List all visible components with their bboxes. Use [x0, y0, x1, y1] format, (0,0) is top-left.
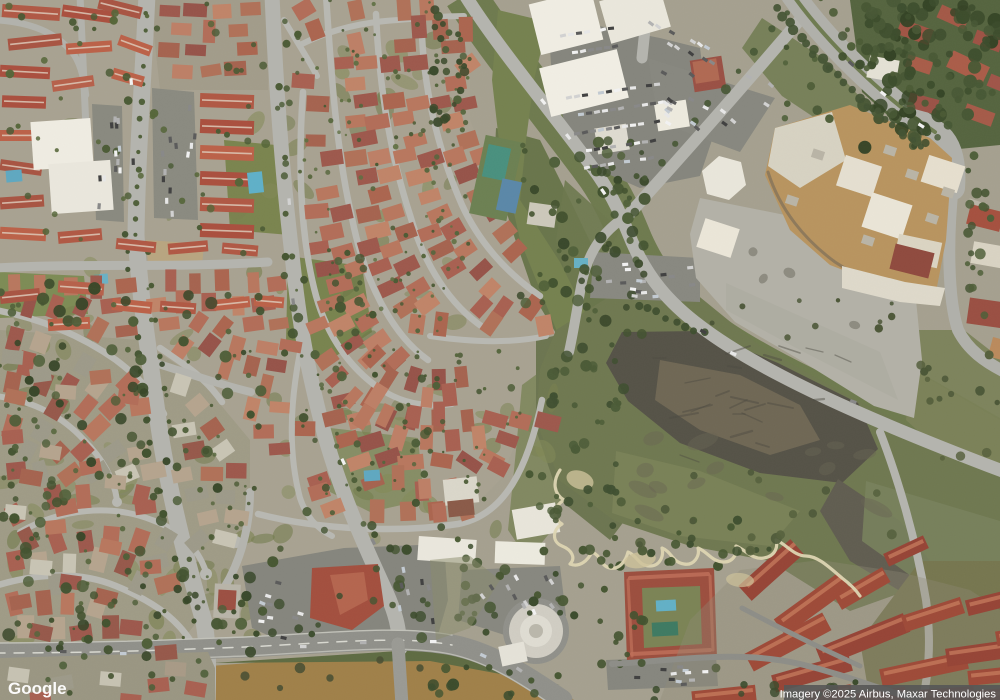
- svg-text:Imagery ©2025 Airbus, Maxar Te: Imagery ©2025 Airbus, Maxar Technologies: [780, 689, 997, 700]
- svg-text:Google: Google: [8, 679, 67, 698]
